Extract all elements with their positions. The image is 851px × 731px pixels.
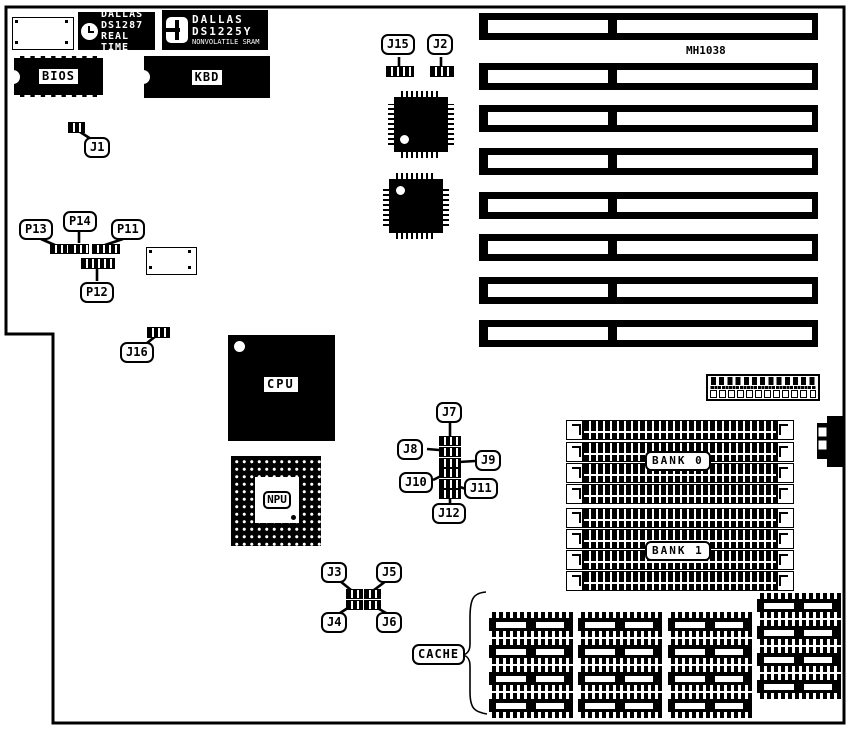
cache-chip [668, 693, 752, 718]
cache-chip [668, 612, 752, 637]
dallas-logo-icon [166, 17, 188, 43]
isa-slot-5 [479, 192, 818, 219]
callout-j12: J12 [432, 503, 466, 524]
jumper-p11 [92, 244, 120, 254]
cache-chip [489, 693, 573, 718]
isa-slot-7 [479, 277, 818, 304]
power-connector-holes [710, 390, 816, 398]
cache-chip [489, 639, 573, 664]
cache-chip [578, 639, 662, 664]
isa-slot-6 [479, 234, 818, 261]
callout-j5: J5 [376, 562, 402, 583]
power-connector-pins [710, 377, 816, 385]
simm-socket [566, 508, 794, 528]
callout-j7: J7 [436, 402, 462, 423]
cache-chip [757, 593, 841, 618]
jumper-j6 [364, 600, 381, 610]
npu-socket-center: NPU [255, 477, 299, 523]
qfp-chip-2 [389, 179, 443, 233]
isa-slot-8 [479, 320, 818, 347]
chip-notch [12, 70, 20, 84]
chip-notch [142, 70, 150, 84]
power-connector [706, 374, 820, 401]
pin1-dot [396, 186, 405, 195]
npu-label: NPU [263, 491, 291, 509]
cache-chip [489, 666, 573, 691]
cache-chip [668, 639, 752, 664]
qfp-chip-1 [394, 97, 448, 152]
motherboard-diagram: DALLAS DS1287 REAL TIME DALLAS DS1225Y N… [0, 0, 851, 731]
cache-chip [489, 612, 573, 637]
clock-icon [81, 23, 98, 40]
board-model-label: MH1038 [686, 44, 726, 57]
callout-j8: J8 [397, 439, 423, 460]
callout-j2: J2 [427, 34, 453, 55]
pin1-dot [234, 341, 245, 352]
cache-chip [668, 666, 752, 691]
cache-chip [757, 620, 841, 645]
cache-chip [757, 647, 841, 672]
jumper-j4 [346, 600, 363, 610]
bios-chip: BIOS [14, 56, 103, 97]
callout-p12: P12 [80, 282, 114, 303]
jumper-j10 [439, 468, 461, 478]
cpu-chip: CPU [228, 335, 335, 441]
pin1-dot [291, 515, 296, 520]
callout-j1: J1 [84, 137, 110, 158]
cache-label: CACHE [412, 644, 465, 665]
isa-slot-1 [479, 13, 818, 40]
callout-j15: J15 [381, 34, 415, 55]
keyboard-connector-pin [818, 440, 827, 450]
component-footprint [146, 247, 197, 275]
keyboard-connector-pin [818, 427, 827, 437]
jumper-j15 [386, 66, 414, 77]
cache-chip [578, 666, 662, 691]
jumper-p14 [69, 244, 89, 254]
callout-j11: J11 [464, 478, 498, 499]
bank1-label: BANK 1 [645, 541, 711, 561]
rtc-brand: DALLAS [101, 9, 152, 20]
rtc-model: DS1287 [101, 20, 152, 31]
isa-slot-2 [479, 63, 818, 90]
cache-chip [757, 674, 841, 699]
jumper-j9 [439, 458, 461, 468]
bios-label: BIOS [38, 68, 79, 85]
sram-model: DS1225Y [192, 26, 259, 38]
callout-j16: J16 [120, 342, 154, 363]
callout-p14: P14 [63, 211, 97, 232]
jumper-j7 [439, 436, 461, 446]
sram-chip: DALLAS DS1225Y NONVOLATILE SRAM [162, 10, 268, 50]
callout-p13: P13 [19, 219, 53, 240]
jumper-p13 [50, 244, 69, 254]
kbd-label: KBD [191, 69, 224, 86]
callout-j6: J6 [376, 612, 402, 633]
jumper-j11 [439, 479, 461, 489]
jumper-j3 [346, 589, 363, 599]
jumper-j16 [147, 327, 170, 338]
cpu-label: CPU [263, 376, 299, 393]
callout-j4: J4 [321, 612, 347, 633]
cache-chip [578, 693, 662, 718]
jumper-p12 [81, 258, 115, 269]
bank0-label: BANK 0 [645, 451, 711, 471]
sram-subtitle: NONVOLATILE SRAM [192, 38, 259, 46]
jumper-j12 [439, 489, 461, 499]
rtc-subtitle: REAL TIME [101, 31, 152, 53]
jumper-j1 [68, 122, 85, 133]
jumper-j5 [364, 589, 381, 599]
simm-socket [566, 420, 794, 440]
callout-j3: J3 [321, 562, 347, 583]
pin1-dot [400, 135, 409, 144]
callout-p11: P11 [111, 219, 145, 240]
cache-chip [578, 612, 662, 637]
simm-socket [566, 484, 794, 504]
callout-j9: J9 [475, 450, 501, 471]
kbd-chip: KBD [144, 56, 270, 98]
isa-slot-4 [479, 148, 818, 175]
jumper-j2 [430, 66, 454, 77]
jumper-j8 [439, 447, 461, 457]
rtc-chip: DALLAS DS1287 REAL TIME [78, 12, 155, 50]
isa-slot-3 [479, 105, 818, 132]
power-connector-contacts [710, 386, 816, 389]
simm-socket [566, 571, 794, 591]
callout-j10: J10 [399, 472, 433, 493]
battery-footprint [12, 17, 74, 50]
npu-socket: NPU [231, 456, 321, 546]
